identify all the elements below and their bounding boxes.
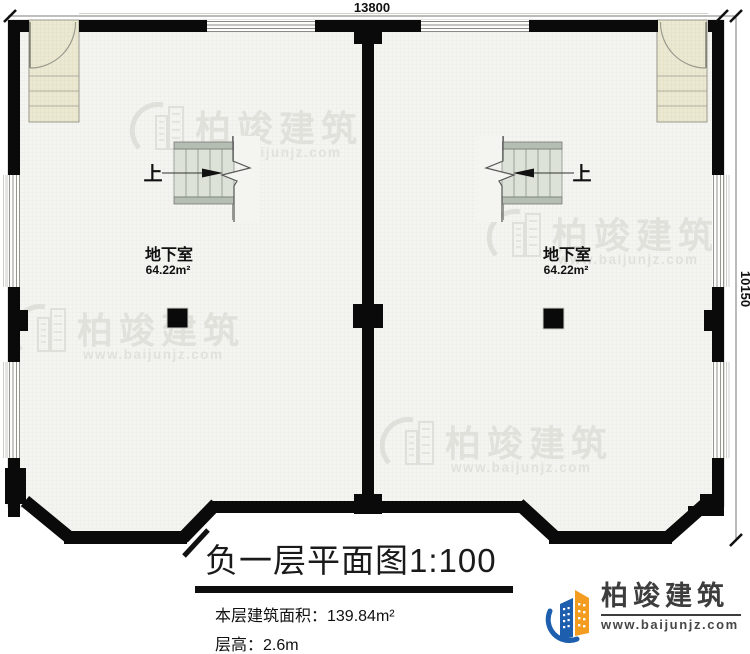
stair-up-label-left: 上 [143, 163, 162, 185]
room-name-right: 地下室 [543, 245, 591, 264]
porch-left [29, 20, 79, 122]
company-logo: 柏竣建筑 www.baijunjz.com [543, 581, 741, 643]
logo-brand-name: 柏竣建筑 [601, 581, 741, 612]
pilaster-right [704, 310, 712, 331]
logo-building-icon [543, 581, 593, 643]
logo-text-block: 柏竣建筑 www.baijunjz.com [601, 581, 741, 632]
dimension-top-value: 13800 [354, 0, 390, 15]
title-block: 负一层平面图1:100 本层建筑面积：139.84m² 层高：2.6m [205, 534, 513, 654]
floor-height-text: 层高：2.6m [215, 631, 513, 654]
logo-website-url: www.baijunjz.com [601, 617, 741, 632]
title-underline [195, 586, 513, 593]
room-label-left: 地下室 64.22m² [145, 245, 193, 277]
room-area-left: 64.22m² [146, 263, 191, 277]
column-right [543, 308, 564, 329]
dimension-right-value: 10150 [738, 271, 750, 307]
floorplan-page: 柏竣建筑 www.baijunjz.com [0, 0, 750, 654]
room-name-left: 地下室 [145, 245, 193, 264]
floorplan-drawing: 柏竣建筑 www.baijunjz.com [0, 0, 750, 560]
pilaster-left [20, 310, 28, 331]
floor-area-text: 本层建筑面积：139.84m² [215, 602, 513, 626]
room-label-right: 地下室 64.22m² [543, 245, 591, 277]
stair-up-label-right: 上 [572, 163, 591, 185]
logo-divider [601, 614, 741, 616]
center-wall [362, 20, 374, 513]
room-area-right: 64.22m² [544, 263, 589, 277]
porch-right [657, 20, 707, 122]
plan-title: 负一层平面图1:100 [205, 534, 513, 582]
column-left [167, 308, 188, 328]
